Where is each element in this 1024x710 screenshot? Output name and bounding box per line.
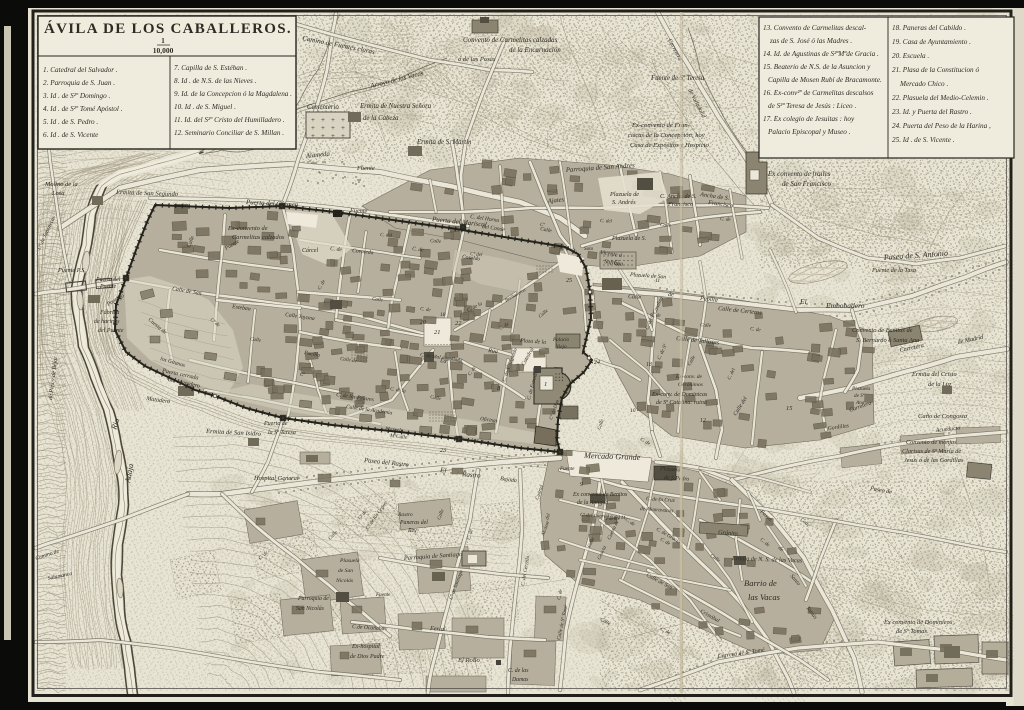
svg-text:Puente P.S.: Puente P.S.	[57, 267, 86, 274]
svg-text:Convento de Carmelitas calzada: Convento de Carmelitas calzadas	[463, 36, 558, 44]
svg-text:21: 21	[434, 329, 440, 336]
svg-text:de la Encarnación: de la Encarnación	[509, 46, 561, 54]
svg-text:25: 25	[566, 278, 572, 284]
svg-text:Ermita del Cristo: Ermita del Cristo	[911, 371, 957, 378]
svg-text:de la Luz: de la Luz	[928, 381, 952, 388]
svg-text:+: +	[321, 124, 325, 132]
svg-text:Embobadero: Embobadero	[825, 301, 865, 310]
svg-text:8. Id . de N.S. de las Nieves: 8. Id . de N.S. de las Nieves .	[174, 77, 257, 85]
svg-text:de S²ª Teresa de Jesús : Liceo: de S²ª Teresa de Jesús : Liceo .	[768, 102, 856, 110]
svg-text:Fuente: Fuente	[349, 207, 368, 215]
svg-text:Fuente: Fuente	[375, 592, 391, 598]
svg-text:Plazuela de S.: Plazuela de S.	[611, 236, 646, 242]
svg-text:Convento de Benitas de: Convento de Benitas de	[852, 327, 913, 334]
svg-text:Calle: Calle	[430, 239, 442, 245]
svg-text:El: El	[439, 466, 447, 475]
svg-text:Viejo: Viejo	[556, 344, 567, 350]
svg-text:11. Id. del S²º Cristo del Hum: 11. Id. del S²º Cristo del Humilladero .	[174, 116, 285, 124]
svg-text:Damas: Damas	[511, 677, 529, 683]
svg-text:20. Escuela .: 20. Escuela .	[892, 52, 929, 60]
svg-text:14. Id. de Agustinas de S²ªMªd: 14. Id. de Agustinas de S²ªMªde Gracia .	[763, 50, 879, 58]
svg-text:18: 18	[646, 362, 652, 368]
svg-text:de la Antigua: de la Antigua	[577, 500, 608, 506]
svg-text:Calle: Calle	[628, 294, 642, 301]
svg-text:Jesús ó de las Gordillas: Jesús ó de las Gordillas	[904, 457, 964, 464]
svg-text:5. Id . de S. Pedro .: 5. Id . de S. Pedro .	[43, 118, 98, 126]
svg-text:Fábrica: Fábrica	[99, 310, 119, 316]
svg-text:+: +	[341, 132, 345, 140]
svg-text:C. del: C. del	[380, 233, 393, 239]
svg-text:15: 15	[786, 405, 792, 412]
svg-text:Caño de Congosta: Caño de Congosta	[918, 413, 968, 420]
svg-text:+: +	[311, 116, 315, 124]
svg-text:C. Ancha de S.: C. Ancha de S.	[660, 193, 697, 200]
svg-text:2. Parroquia de S. Juan .: 2. Parroquia de S. Juan .	[43, 79, 115, 87]
svg-text:Casa de Expósitos y Hospicio: Casa de Expósitos y Hospicio	[630, 142, 709, 149]
svg-text:23: 23	[440, 448, 446, 454]
svg-text:Barrio de: Barrio de	[744, 578, 777, 588]
svg-text:1: 1	[161, 37, 165, 45]
svg-text:22. Plasuela del Medio-Celemin: 22. Plasuela del Medio-Celemin .	[892, 94, 989, 102]
svg-text:C. de: C. de	[330, 246, 343, 253]
svg-text:Ex convento de frailes: Ex convento de frailes	[767, 170, 831, 178]
svg-text:+: +	[311, 124, 315, 132]
svg-text:Plazuela: Plazuela	[851, 386, 871, 392]
svg-text:Calle: Calle	[660, 223, 672, 229]
svg-text:1: 1	[544, 381, 547, 388]
svg-text:Fuente de Sª Teresa: Fuente de Sª Teresa	[650, 75, 705, 82]
svg-text:Feria: Feria	[429, 625, 444, 633]
svg-text:Plasuela: Plasuela	[339, 558, 360, 564]
svg-text:Soto: Soto	[584, 246, 594, 252]
svg-text:Paneras del: Paneras del	[399, 520, 428, 526]
svg-text:10. Id . de S. Miguel .: 10. Id . de S. Miguel .	[174, 103, 236, 111]
svg-text:C. de las: C. de las	[508, 668, 529, 674]
svg-text:+: +	[321, 132, 325, 140]
svg-text:Puerta del: Puerta del	[95, 277, 121, 283]
svg-text:Ermita de S. Martin: Ermita de S. Martin	[416, 139, 472, 146]
svg-text:+: +	[321, 116, 325, 124]
svg-text:Puerta de: Puerta de	[263, 421, 288, 427]
svg-text:24. Puerta del Peso de la Hari: 24. Puerta del Peso de la Harina ,	[892, 122, 991, 130]
svg-text:las Vacas: las Vacas	[748, 592, 781, 602]
svg-text:Cárcel: Cárcel	[302, 248, 318, 254]
svg-text:24: 24	[594, 359, 600, 366]
svg-text:+: +	[341, 124, 345, 132]
svg-text:Molino de la: Molino de la	[44, 181, 78, 188]
svg-text:ciscas de la Concepción, hoy: ciscas de la Concepción, hoy	[628, 132, 705, 139]
svg-text:+: +	[331, 116, 335, 124]
svg-text:Fuente: Fuente	[356, 165, 375, 172]
svg-text:15. Beaterio de N.S. de la Asu: 15. Beaterio de N.S. de la Asuncion y	[763, 63, 871, 71]
svg-text:Mercado Chico .: Mercado Chico .	[899, 80, 948, 88]
svg-text:Ermita de Nuestra Señora: Ermita de Nuestra Señora	[359, 103, 432, 110]
svg-text:de Sº Tomas: de Sº Tomas	[896, 628, 927, 635]
svg-text:Losa: Losa	[51, 190, 64, 197]
svg-text:12. Seminario Conciliar de S.: 12. Seminario Conciliar de S. Millan .	[174, 129, 284, 137]
svg-text:+: +	[341, 116, 345, 124]
svg-text:6. Id . de S. Vicente: 6. Id . de S. Vicente	[43, 131, 99, 139]
svg-text:Hospital General: Hospital General	[253, 475, 299, 482]
svg-text:G: G	[614, 259, 619, 267]
svg-text:Ex-hospital: Ex-hospital	[351, 644, 380, 650]
svg-text:El: El	[799, 297, 807, 306]
svg-text:Gránito: Gránito	[718, 529, 738, 537]
svg-text:18. Paneras del Cabildo .: 18. Paneras del Cabildo .	[892, 24, 966, 32]
svg-text:Ex-conv. de Dominicas: Ex-conv. de Dominicas	[651, 392, 708, 398]
svg-text:Nicolás: Nicolás	[335, 578, 353, 584]
svg-text:3. Id . de S²º Domingo .: 3. Id . de S²º Domingo .	[42, 92, 110, 100]
svg-text:Clarisas de Sª María de: Clarisas de Sª María de	[902, 448, 961, 455]
svg-text:+: +	[311, 132, 315, 140]
svg-text:San Nicolás: San Nicolás	[296, 606, 325, 612]
svg-text:C. del: C. del	[600, 219, 613, 225]
svg-text:7. Capilla de S. Estéban .: 7. Capilla de S. Estéban .	[174, 64, 247, 72]
svg-text:Fuente: Fuente	[559, 466, 575, 472]
svg-text:Ex-conv. de: Ex-conv. de	[675, 374, 702, 380]
svg-text:la Sª Teresa: la Sª Teresa	[268, 430, 296, 436]
svg-text:18: 18	[440, 312, 446, 318]
svg-text:de la Cabeza: de la Cabeza	[363, 115, 399, 122]
svg-text:Carmelitas calzados: Carmelitas calzados	[232, 234, 285, 241]
svg-text:de: de	[668, 292, 674, 298]
svg-text:23. Id. y Puerta del Rastro .: 23. Id. y Puerta del Rastro .	[892, 108, 972, 116]
svg-text:Ex convento de Benitos: Ex convento de Benitos	[572, 492, 628, 498]
svg-text:de Sª: de Sª	[854, 393, 865, 399]
svg-text:Fuente de la Tasa: Fuente de la Tasa	[871, 267, 916, 274]
svg-text:12: 12	[700, 418, 706, 424]
svg-text:Convento de monjas: Convento de monjas	[906, 439, 957, 446]
svg-text:ÁVILA DE LOS CABALLEROS.: ÁVILA DE LOS CABALLEROS.	[44, 20, 292, 37]
svg-text:9: 9	[580, 482, 583, 488]
svg-text:Palacio Episcopal y Museo .: Palacio Episcopal y Museo .	[767, 128, 851, 136]
svg-text:de Dios Padre: de Dios Padre	[350, 654, 385, 660]
svg-text:Capilla de Mosen Rubí de Braca: Capilla de Mosen Rubí de Bracamonte.	[768, 76, 882, 84]
svg-text:El Rollo: El Rollo	[457, 657, 480, 664]
svg-text:10,000: 10,000	[153, 46, 174, 55]
svg-text:20: 20	[420, 320, 426, 326]
svg-text:19. Casa de Ayuntamiento .: 19. Casa de Ayuntamiento .	[892, 38, 971, 46]
svg-text:Parroquia de: Parroquia de	[297, 596, 329, 602]
svg-text:17. Ex colegio de Jesuitas : h: 17. Ex colegio de Jesuitas : hoy	[763, 115, 855, 123]
svg-text:C. de: C. de	[720, 217, 732, 223]
svg-text:de San: de San	[338, 568, 353, 574]
svg-text:de harinas: de harinas	[94, 319, 120, 325]
svg-text:10: 10	[630, 408, 636, 414]
svg-text:21. Plasa de la Constitucion ó: 21. Plasa de la Constitucion ó	[892, 66, 979, 74]
svg-text:+: +	[331, 124, 335, 132]
svg-text:Plazuela de: Plazuela de	[609, 191, 639, 198]
svg-text:Palacio: Palacio	[552, 337, 570, 343]
svg-text:Cº: Cº	[300, 372, 305, 378]
svg-text:1. Catedral del Salvador .: 1. Catedral del Salvador .	[43, 66, 118, 74]
svg-text:ó de las Posas: ó de las Posas	[458, 56, 496, 63]
svg-text:25. Id . de S. Vicente .: 25. Id . de S. Vicente .	[892, 136, 955, 144]
svg-text:Ex convento de Dominicos: Ex convento de Dominicos	[883, 619, 953, 626]
svg-text:16. Ex-conv²º de Carmelitas de: 16. Ex-conv²º de Carmelitas descalsos	[763, 89, 874, 97]
svg-text:Rey: Rey	[407, 528, 417, 534]
svg-text:13. Convento de Carmelitas des: 13. Convento de Carmelitas descal-	[763, 24, 867, 32]
svg-text:Cº: Cº	[540, 222, 546, 228]
svg-text:del Puente: del Puente	[98, 328, 124, 334]
svg-text:zas de S. José ó las Madres .: zas de S. José ó las Madres .	[769, 37, 852, 45]
svg-text:9. Id. de la Concepcion ó la M: 9. Id. de la Concepcion ó la Magdalena .	[174, 90, 292, 98]
svg-text:C. de: C. de	[650, 313, 662, 319]
svg-text:S. Andrés: S. Andrés	[612, 199, 636, 206]
svg-text:Rastro: Rastro	[397, 512, 413, 518]
svg-text:Ex-convento de: Ex-convento de	[227, 225, 268, 232]
svg-text:de San Francisco: de San Francisco	[782, 180, 831, 188]
svg-text:Cementerio: Cementerio	[307, 104, 339, 111]
svg-text:22: 22	[455, 320, 462, 327]
svg-text:Fuente: Fuente	[605, 517, 621, 522]
svg-text:Puente: Puente	[99, 284, 117, 290]
svg-text:+: +	[331, 132, 335, 140]
svg-text:4. Id . de S²º Tomé Apóstol .: 4. Id . de S²º Tomé Apóstol .	[43, 105, 123, 113]
svg-text:Ana: Ana	[855, 400, 865, 406]
svg-text:S. Bernardo ó Santa Ana: S. Bernardo ó Santa Ana	[856, 337, 919, 344]
